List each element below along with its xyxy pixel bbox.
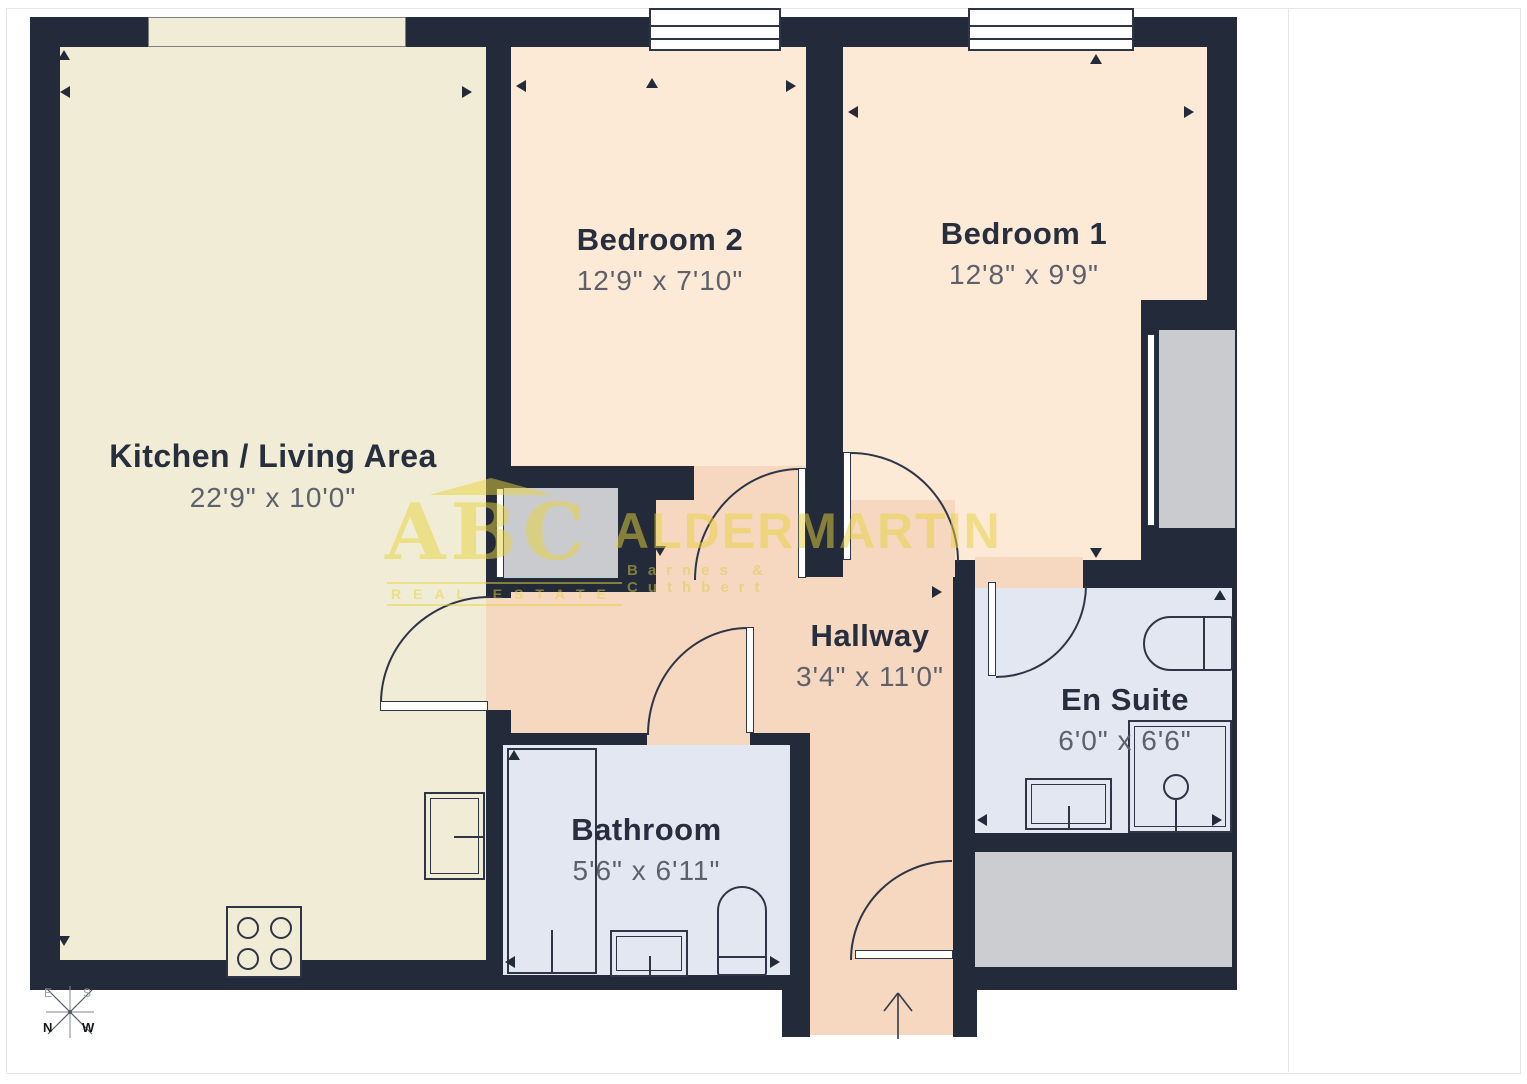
wall [806, 47, 843, 452]
room-hallway [851, 560, 953, 585]
measure-arrow [60, 86, 70, 98]
toilet-line [719, 956, 765, 958]
room-dims: 3'4" x 11'0" [700, 661, 1040, 693]
compass-west-label: W [82, 1020, 94, 1035]
sink-stem [649, 956, 651, 977]
label-ensuite: En Suite 6'0" x 6'6" [1000, 682, 1250, 757]
wardrobe [502, 488, 618, 578]
cabinet-handle [454, 836, 483, 838]
measure-arrow [1184, 106, 1194, 118]
label-bedroom-1: Bedroom 1 12'8" x 9'9" [841, 216, 1207, 291]
label-kitchen: Kitchen / Living Area 22'9" x 10'0" [60, 438, 486, 514]
wardrobe [1159, 330, 1235, 528]
measure-arrow [505, 956, 515, 968]
door-leaf [843, 452, 851, 560]
bath-line [551, 930, 553, 974]
sink [1025, 778, 1112, 830]
measure-arrow [848, 106, 858, 118]
measure-arrow [932, 586, 942, 598]
door-leaf [496, 488, 504, 578]
compass-north-label: N [43, 1020, 52, 1035]
toilet [717, 886, 767, 976]
wall [656, 466, 694, 500]
room-name: En Suite [1000, 682, 1250, 718]
door-leaf [1147, 334, 1155, 526]
sink [610, 930, 688, 977]
measure-arrow [1212, 814, 1222, 826]
door-leaf [380, 701, 488, 711]
toilet [1143, 616, 1233, 671]
measure-arrow [498, 586, 508, 598]
wall [782, 985, 810, 1037]
room-name: Bedroom 1 [841, 216, 1207, 252]
measure-arrow [462, 86, 472, 98]
measure-arrow [1090, 54, 1102, 64]
room-name: Hallway [700, 618, 1040, 654]
measure-arrow [58, 936, 70, 946]
shower-drain [1163, 774, 1189, 800]
label-hallway: Hallway 3'4" x 11'0" [700, 618, 1040, 693]
shower-stem [1175, 800, 1177, 833]
burner [237, 917, 259, 939]
sidebar: ABC REAL ESTATE ALDERMARTIN Barnes & Cut… [1288, 8, 1521, 1072]
window-pane-line [970, 25, 1132, 27]
measure-arrow [646, 78, 658, 88]
window [968, 8, 1134, 51]
room-name: Bathroom [503, 812, 790, 848]
floor-plan: Kitchen / Living Area 22'9" x 10'0" Bedr… [0, 0, 1288, 1080]
room-dims: 6'0" x 6'6" [1000, 725, 1250, 757]
measure-arrow [508, 750, 520, 760]
floorplan-page: { "plan": { "rooms": [ {"name": "Kitchen… [0, 0, 1527, 1080]
measure-arrow [58, 50, 70, 60]
label-bedroom-2: Bedroom 2 12'9" x 7'10" [511, 222, 809, 297]
wall [953, 985, 977, 1037]
label-bathroom: Bathroom 5'6" x 6'11" [503, 812, 790, 887]
room-dims: 22'9" x 10'0" [60, 482, 486, 514]
measure-arrow [977, 814, 987, 826]
entrance-arrow-icon [872, 983, 924, 1041]
window [649, 8, 781, 51]
measure-arrow [654, 546, 666, 556]
room-name: Bedroom 2 [511, 222, 809, 258]
burner [270, 948, 292, 970]
door-leaf [855, 950, 953, 959]
wall [806, 452, 843, 577]
storage-area [975, 852, 1232, 967]
room-dims: 12'8" x 9'9" [841, 259, 1207, 291]
burner [270, 917, 292, 939]
burner [237, 948, 259, 970]
measure-arrow [1214, 590, 1226, 600]
door-leaf [798, 468, 806, 578]
compass-south-label: S [83, 986, 91, 1000]
cistern-line [1203, 618, 1205, 669]
compass-east-label: E [44, 986, 52, 1000]
measure-arrow [786, 80, 796, 92]
cabinet [424, 792, 485, 880]
measure-arrow [516, 80, 526, 92]
balcony-door [148, 17, 406, 47]
room-dims: 12'9" x 7'10" [511, 265, 809, 297]
window-pane-line [651, 25, 779, 27]
measure-arrow [1090, 548, 1102, 558]
window-pane-line [651, 38, 779, 40]
room-name: Kitchen / Living Area [60, 438, 486, 475]
sink-stem [1068, 806, 1070, 830]
stove [226, 906, 302, 978]
measure-arrow [770, 956, 780, 968]
window-pane-line [970, 38, 1132, 40]
room-dims: 5'6" x 6'11" [503, 855, 790, 887]
